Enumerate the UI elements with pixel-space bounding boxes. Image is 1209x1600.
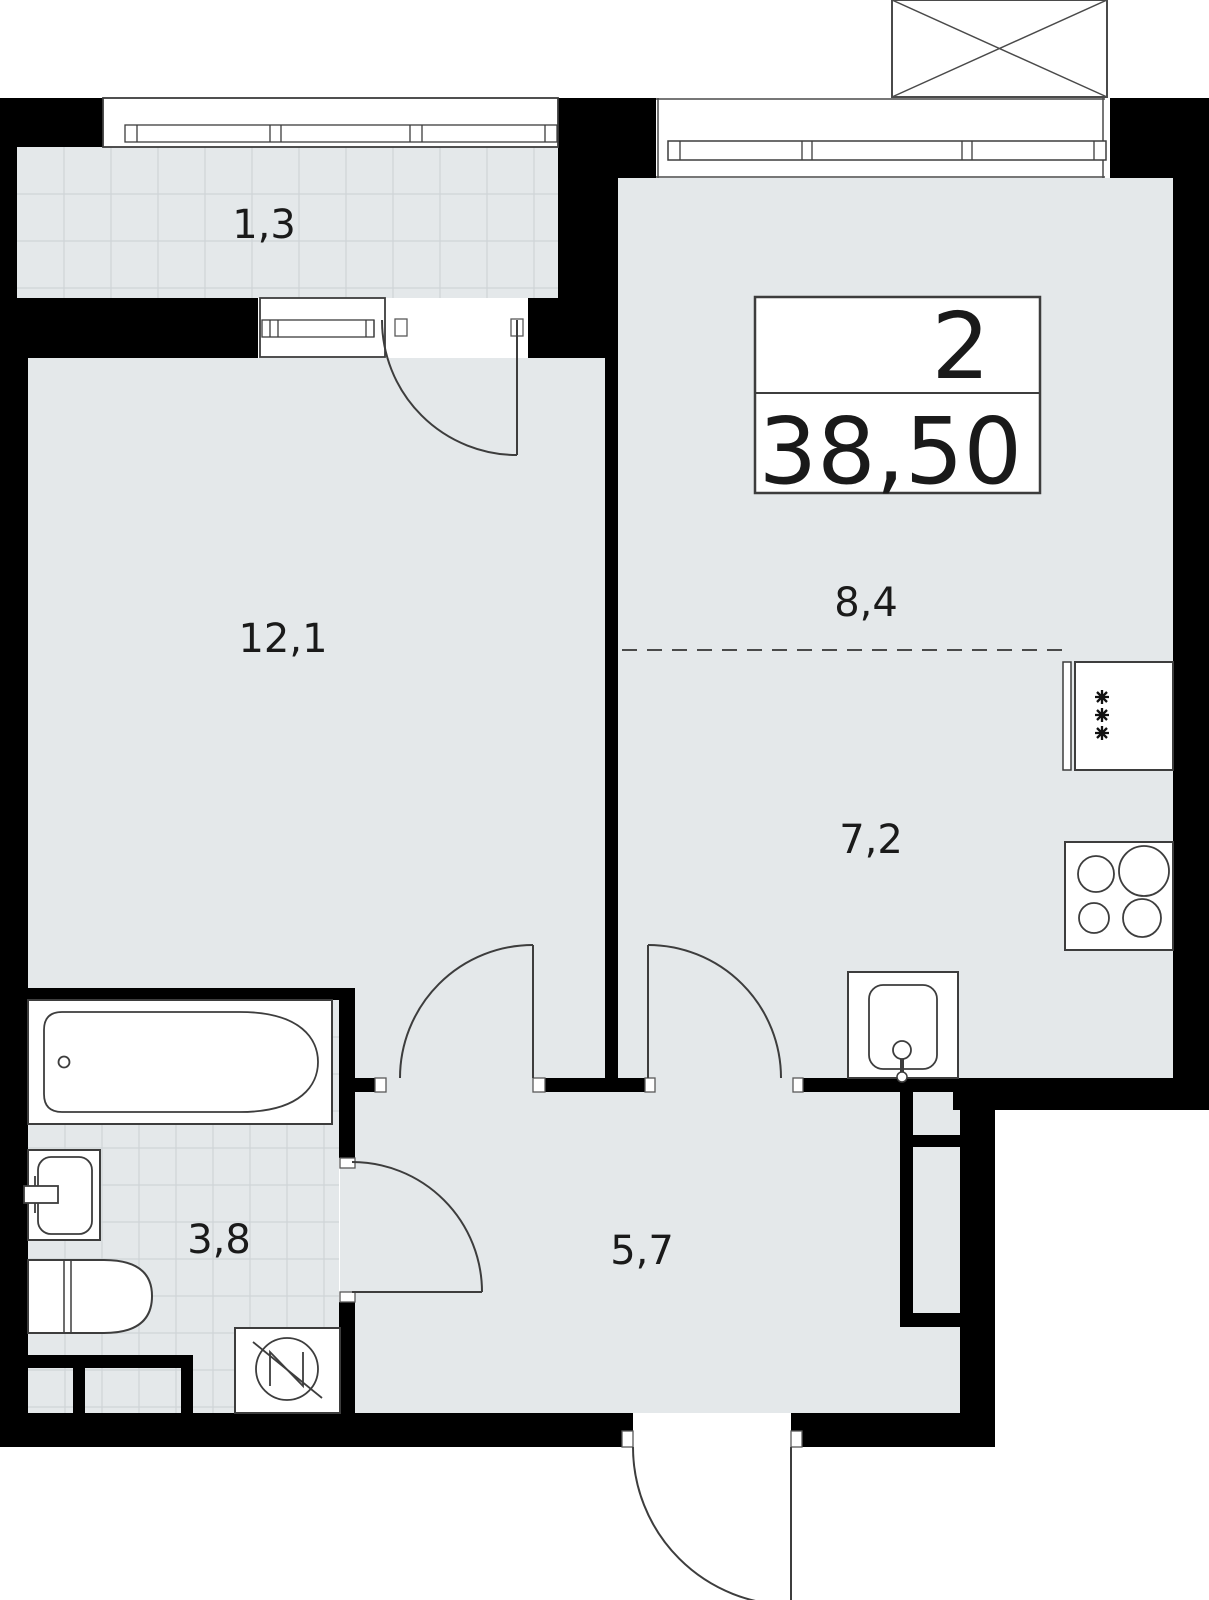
wall-right-main [1173,178,1209,1110]
opening-living-door [386,1078,533,1092]
floor-plan-page: 1,3 12,1 8,4 7,2 3,8 5,7 2 38,50 [0,0,1209,1600]
wall-duct-partition-1 [913,1135,960,1147]
duct-shaft-cell-1 [913,1092,960,1135]
jamb-kitchen-door-right [793,1078,803,1092]
kitchen-window-recess [656,98,1105,178]
kitchen-sink [848,972,958,1082]
kitchen-window [656,98,1106,178]
room-label-living-room: 12,1 [238,616,327,662]
wall-duct-right [960,1092,995,1447]
jamb-entrance-door-right [791,1431,802,1447]
toilet-body [28,1260,152,1333]
refrigerator-snowflake-icons [1095,690,1109,740]
wall-left-main [0,298,28,1447]
floor-plan: 1,3 12,1 8,4 7,2 3,8 5,7 2 38,50 [0,0,1209,1600]
title-total-area: 38,50 [759,398,1022,505]
snowflake-icon [1095,726,1109,740]
room-label-kitchen-dining: 8,4 [834,580,898,626]
jamb-living-door-left [375,1078,386,1092]
jamb-living-door-right [533,1078,545,1092]
room-label-kitchen: 7,2 [839,817,903,863]
title-block: 2 38,50 [755,293,1040,505]
living-room-window [260,298,385,357]
balcony-railing-band [125,125,557,142]
living-window-glass [262,320,374,337]
room-label-hallway: 5,7 [610,1228,674,1274]
washbasin-tap [24,1186,58,1203]
opening-bathroom-door [340,1168,355,1292]
wall-bathroom-right-lower [339,1302,355,1413]
wall-duct-partition-2 [900,1313,960,1327]
wall-between-doors [545,1078,645,1092]
refrigerator-door-panel [1063,662,1071,770]
wall-bathroom-right-upper [339,1000,355,1158]
wall-top-center [558,98,658,178]
wall-niche-divider-1 [73,1368,85,1413]
snowflake-icon [1095,690,1109,704]
kitchen-sink-tap-base [897,1072,907,1082]
wall-below-balcony [28,298,258,358]
ac-unit-box [892,0,1107,97]
jamb-balcony-door-left [395,319,407,336]
kitchen-window-glass [668,141,1106,160]
wall-living-bathroom [28,988,355,1000]
wall-interior-living-kitchen [605,358,618,1078]
refrigerator [1063,662,1173,770]
kitchen-sink-tap-head [893,1041,911,1059]
cooktop [1065,842,1173,950]
room-label-bathroom: 3,8 [187,1217,251,1263]
jamb-bathroom-door-bottom [340,1292,355,1302]
opening-kitchen-door [655,1078,793,1092]
room-living-floor [28,358,605,1078]
wall-hallway-top-left [355,1078,375,1092]
wall-niche-divider-2 [181,1368,193,1413]
wall-top-left-corner [0,98,103,147]
wall-kitchen-bottom-thin [803,1078,953,1092]
balcony-railing [103,98,558,147]
wall-balcony-left [0,147,17,298]
room-label-balcony: 1,3 [232,202,296,248]
wall-bottom-left [0,1413,633,1447]
refrigerator-body [1075,662,1173,770]
title-rooms-count: 2 [931,293,990,400]
wall-top-right [1110,98,1209,178]
bathtub-drain [59,1057,70,1068]
jamb-entrance-door-left [622,1431,633,1447]
duct-shaft-cell-2 [913,1147,960,1313]
bathtub [28,1000,332,1124]
washbasin [24,1150,100,1240]
snowflake-icon [1095,708,1109,722]
cooktop-body [1065,842,1173,950]
wall-balcony-door-stub [528,298,562,358]
toilet [28,1260,152,1333]
wall-below-toilet [28,1355,193,1368]
door-entrance [633,1447,791,1600]
wall-duct-left-thin [900,1092,913,1327]
wall-divider-upper [558,178,618,358]
door-entrance-swing-arc [633,1447,791,1600]
washing-machine [235,1328,340,1413]
jamb-kitchen-door-left [645,1078,655,1092]
